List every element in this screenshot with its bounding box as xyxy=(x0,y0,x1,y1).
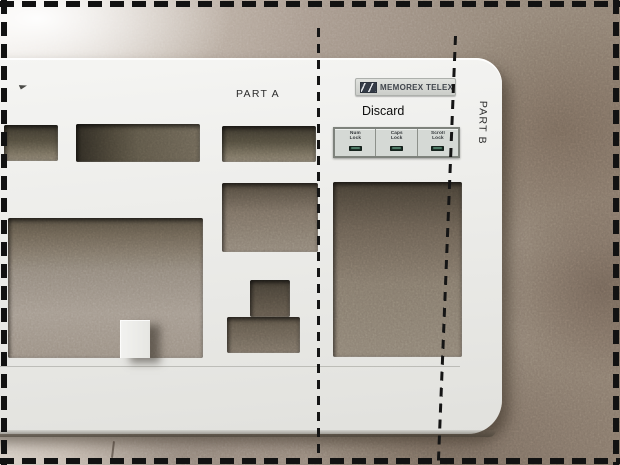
num-lock-cell: Num Lock xyxy=(335,129,375,156)
keyboard-opening-main-left xyxy=(8,218,203,358)
part-b-label: PART B xyxy=(476,101,489,145)
bezel-seam-line xyxy=(0,366,460,367)
part-a-label: PART A xyxy=(236,88,280,100)
cut-line-left xyxy=(317,28,320,459)
scroll-lock-label: Scroll Lock xyxy=(431,131,445,141)
selection-border-left xyxy=(1,0,7,465)
lock-indicator-panel: Num Lock Caps Lock Scroll Lock xyxy=(333,127,460,158)
num-lock-label: Num Lock xyxy=(349,131,361,141)
keyboard-bottom-edge xyxy=(0,430,496,437)
keyboard-opening-middle-lower xyxy=(227,317,300,353)
num-lock-led-icon xyxy=(349,146,362,151)
keyboard-opening-frow-3 xyxy=(222,126,316,162)
selection-border-right xyxy=(613,0,619,465)
brand-badge: MEMOREX TELEX xyxy=(355,78,456,96)
brand-badge-text: MEMOREX TELEX xyxy=(380,83,453,92)
discard-label: Discard xyxy=(362,104,404,118)
annotated-keyboard-photo: MEMOREX TELEX Num Lock Caps Lock Scr xyxy=(0,0,620,465)
keyboard-opening-notch xyxy=(250,280,290,317)
scroll-lock-led-icon xyxy=(431,146,444,151)
keyboard-opening-middle-upper xyxy=(222,183,318,252)
caps-lock-led-icon xyxy=(390,146,403,151)
memorex-telex-logo-icon xyxy=(360,82,377,93)
keyboard-bezel: MEMOREX TELEX Num Lock Caps Lock Scr xyxy=(0,58,502,434)
keyboard-opening-frow-2 xyxy=(76,124,200,162)
selection-border-bottom xyxy=(0,458,620,464)
keyboard-opening-frow-1 xyxy=(4,125,58,161)
selection-border-top xyxy=(0,1,620,7)
caps-lock-cell: Caps Lock xyxy=(375,129,416,156)
caps-lock-label: Caps Lock xyxy=(390,131,402,141)
bezel-tab xyxy=(120,320,150,358)
